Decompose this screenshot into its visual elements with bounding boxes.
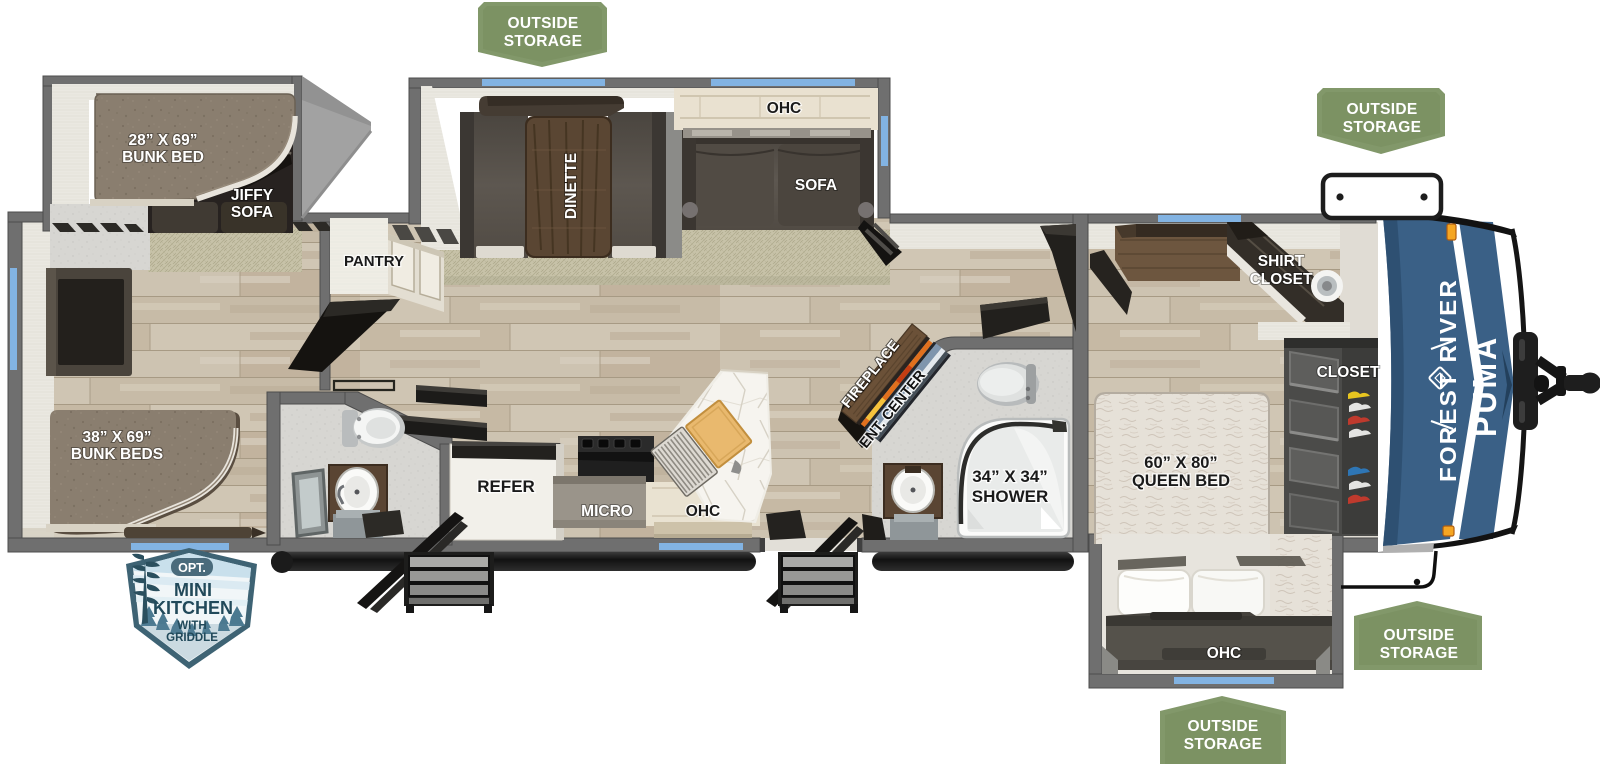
svg-text:OUTSIDE: OUTSIDE xyxy=(508,15,579,32)
svg-text:STORAGE: STORAGE xyxy=(1343,119,1421,136)
svg-text:PUMA: PUMA xyxy=(1466,335,1503,437)
svg-text:38” X 69”: 38” X 69” xyxy=(83,429,152,446)
svg-text:OUTSIDE: OUTSIDE xyxy=(1347,101,1418,118)
svg-text:OHC: OHC xyxy=(686,503,720,520)
svg-text:STORAGE: STORAGE xyxy=(1184,736,1262,753)
svg-text:MICRO: MICRO xyxy=(581,503,633,520)
svg-text:SOFA: SOFA xyxy=(795,177,837,194)
svg-text:QUEEN BED: QUEEN BED xyxy=(1132,472,1230,490)
svg-text:CLOSET: CLOSET xyxy=(1250,271,1313,288)
svg-text:BUNK BED: BUNK BED xyxy=(122,149,204,166)
svg-text:JIFFY: JIFFY xyxy=(231,187,274,204)
svg-text:WITH: WITH xyxy=(177,620,206,632)
svg-text:DINETTE: DINETTE xyxy=(563,153,580,219)
svg-text:KITCHEN: KITCHEN xyxy=(153,598,233,618)
svg-text:OUTSIDE: OUTSIDE xyxy=(1384,627,1455,644)
svg-text:GRIDDLE: GRIDDLE xyxy=(166,632,218,644)
svg-text:STORAGE: STORAGE xyxy=(504,33,582,50)
svg-text:34” X 34”: 34” X 34” xyxy=(972,467,1048,486)
svg-text:CLOSET: CLOSET xyxy=(1317,364,1380,381)
svg-text:BUNK BEDS: BUNK BEDS xyxy=(71,446,163,463)
svg-text:PANTRY: PANTRY xyxy=(344,253,404,270)
svg-text:OUTSIDE: OUTSIDE xyxy=(1188,718,1259,735)
svg-text:REFER: REFER xyxy=(477,477,535,496)
svg-text:OHC: OHC xyxy=(1207,645,1241,662)
svg-text:MINI: MINI xyxy=(174,580,212,600)
svg-text:SHOWER: SHOWER xyxy=(972,487,1049,506)
svg-text:28” X 69”: 28” X 69” xyxy=(129,132,198,149)
svg-text:STORAGE: STORAGE xyxy=(1380,645,1458,662)
svg-text:60” X 80”: 60” X 80” xyxy=(1144,454,1217,472)
svg-text:OHC: OHC xyxy=(767,100,801,117)
svg-text:OPT.: OPT. xyxy=(178,561,206,575)
svg-text:SHIRT: SHIRT xyxy=(1258,253,1305,270)
svg-text:SOFA: SOFA xyxy=(231,204,273,221)
